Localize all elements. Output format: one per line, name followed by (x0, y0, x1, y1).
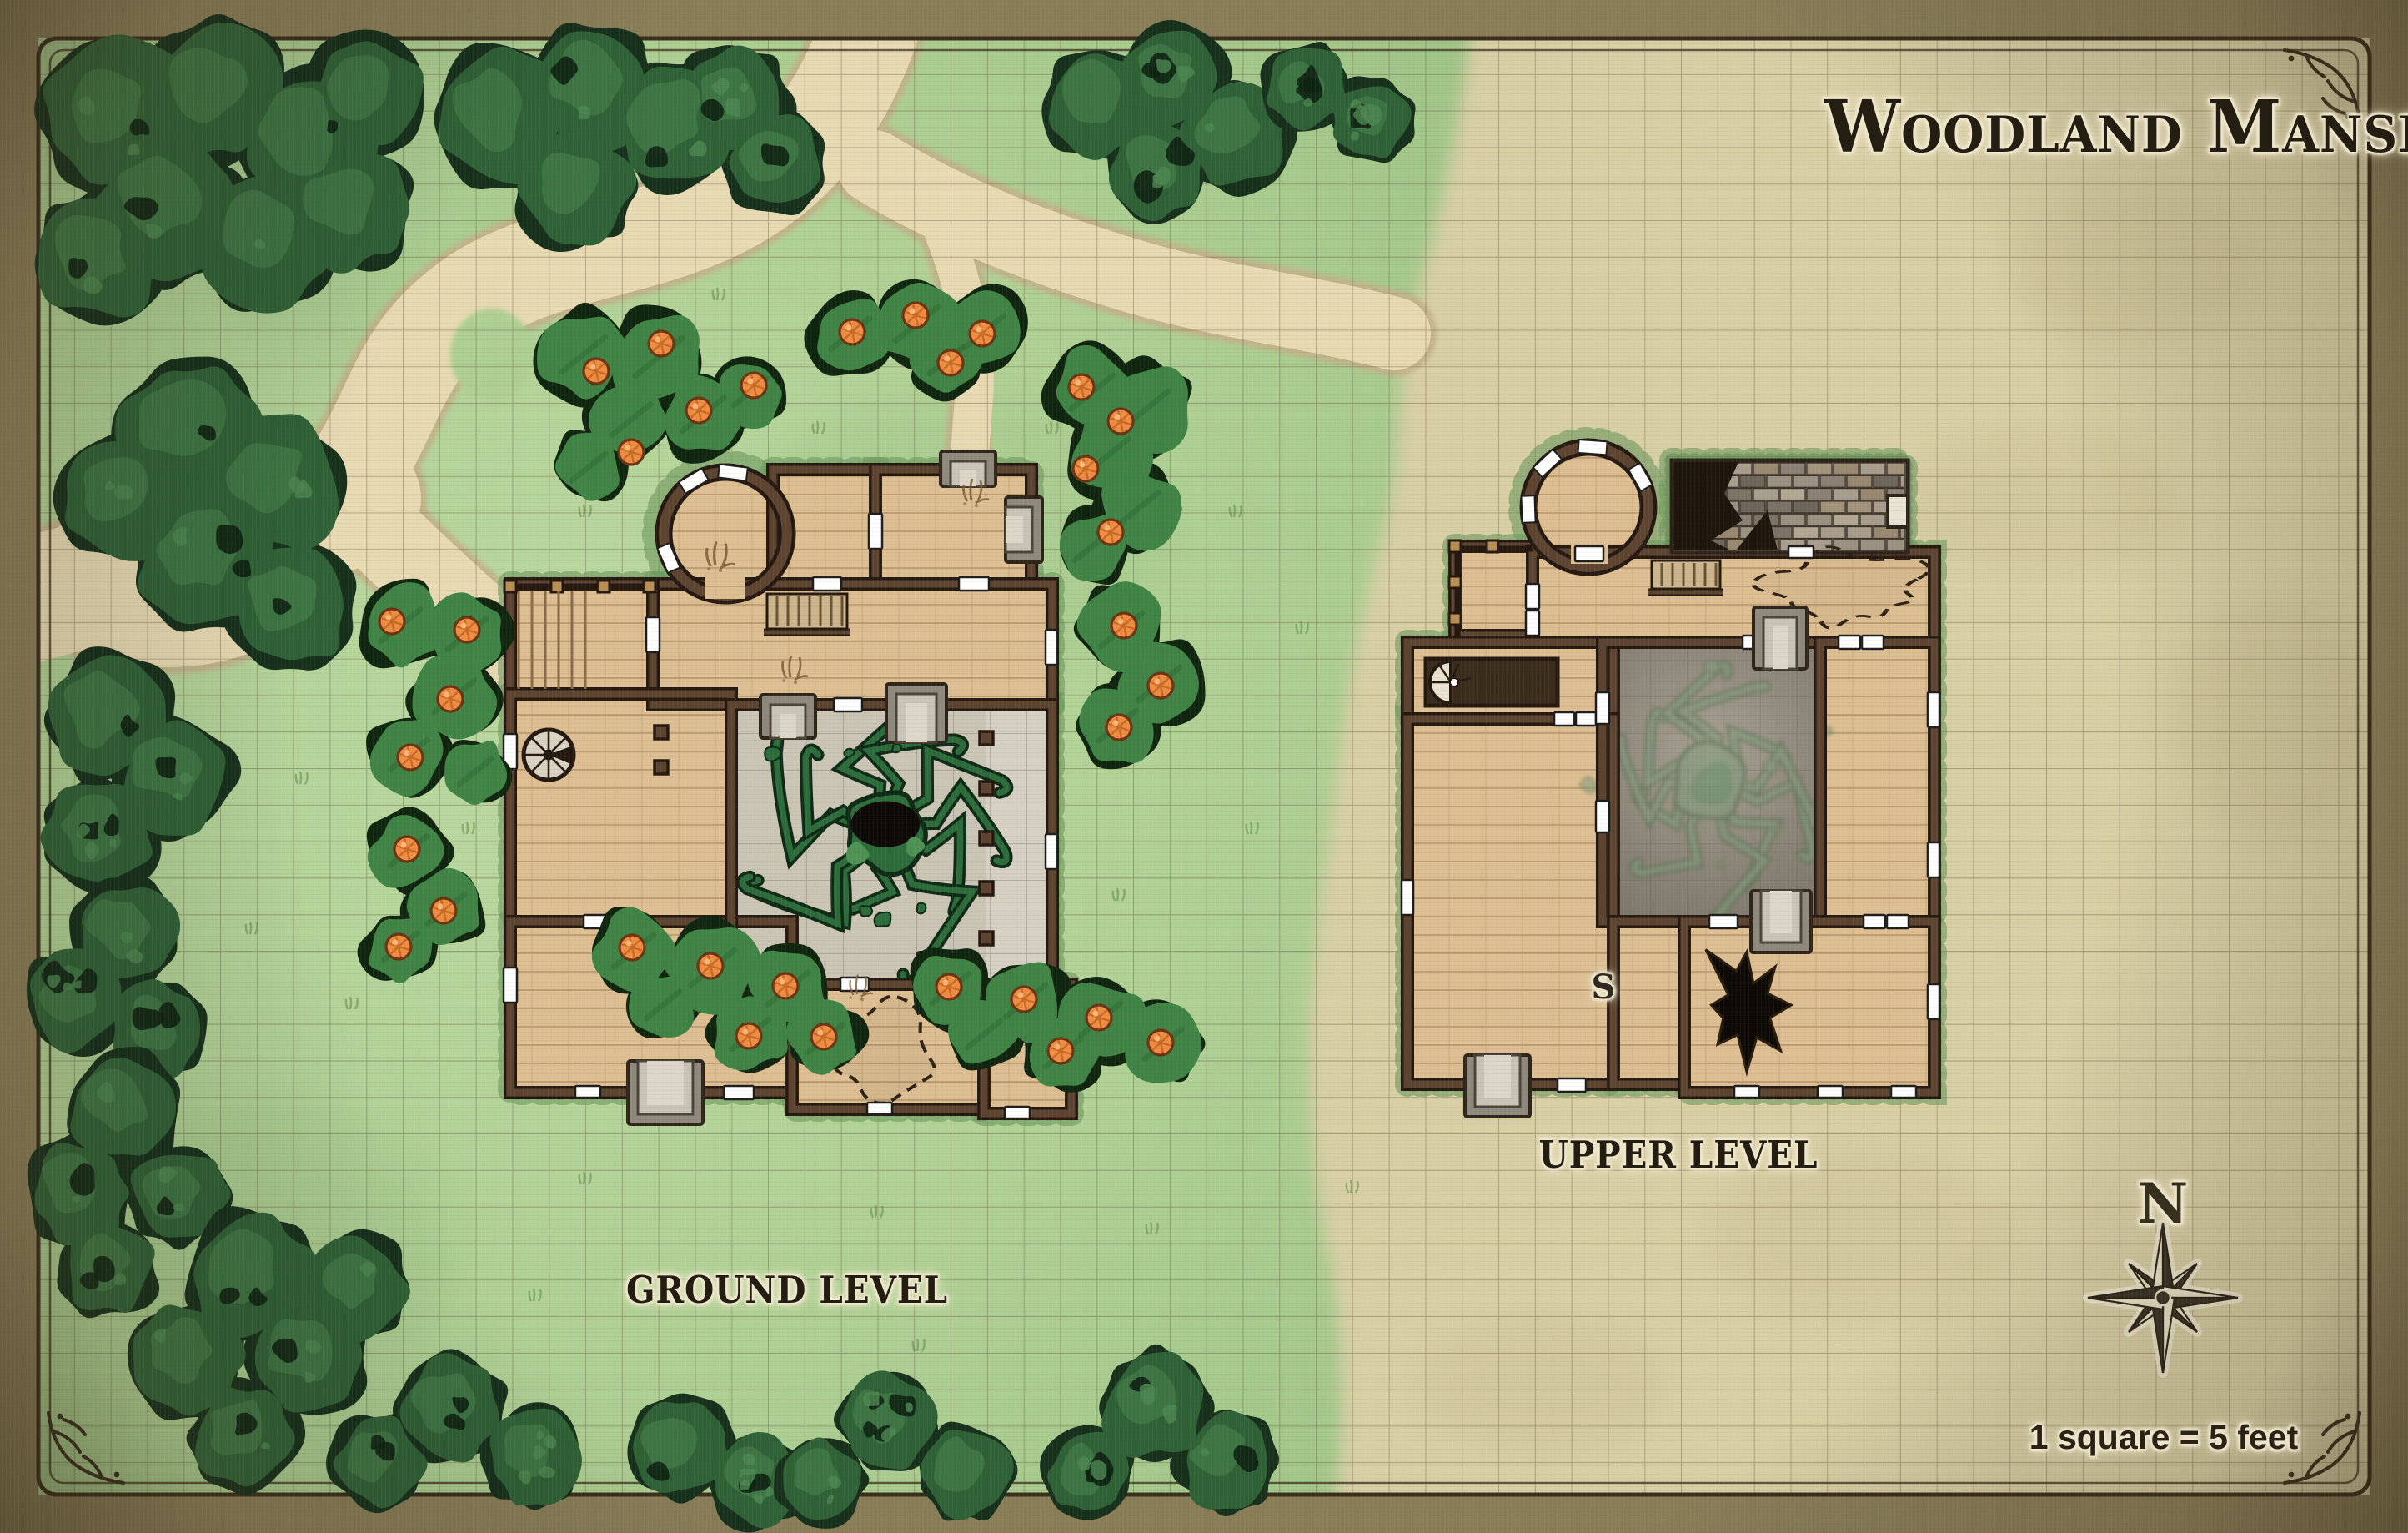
upper-level-label: UPPER LEVEL (1491, 1133, 1866, 1177)
canvas-texture (0, 0, 2408, 1533)
map-scale-note: 1 square = 5 feet (1984, 1418, 2343, 1457)
map-title: Woodland Manse (1824, 85, 2357, 169)
stairs-marker: S (1578, 968, 1628, 1007)
ground-level-label: GROUND LEVEL (599, 1268, 975, 1312)
map-illustration (0, 0, 2408, 1533)
map-canvas: Woodland Manse GROUND LEVEL UPPER LEVEL … (0, 0, 2408, 1533)
compass-north-label: N (2121, 1171, 2205, 1236)
